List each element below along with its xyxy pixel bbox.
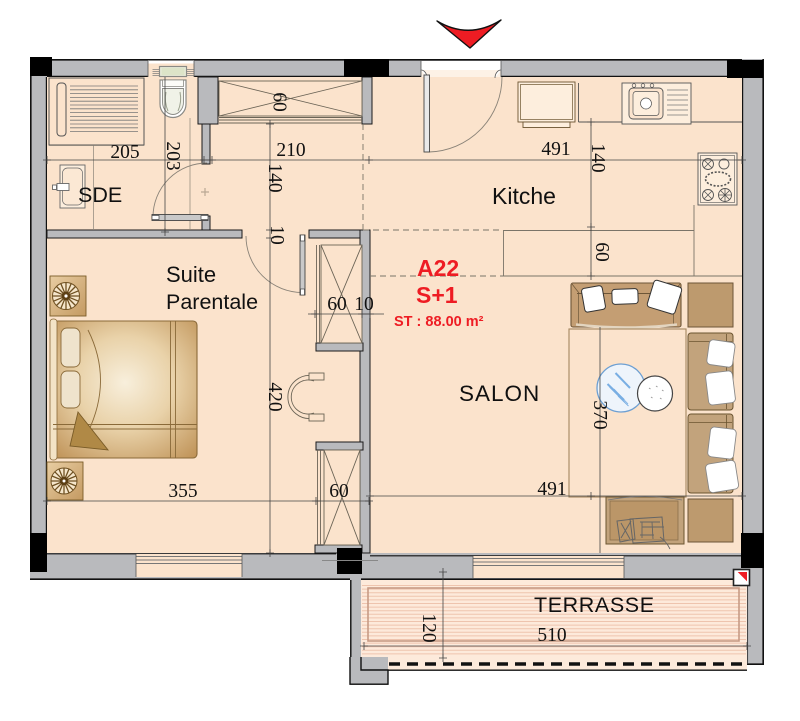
svg-text:Suite: Suite bbox=[166, 262, 216, 287]
svg-text:140: 140 bbox=[264, 163, 285, 192]
svg-text:TERRASSE: TERRASSE bbox=[534, 593, 655, 617]
svg-text:120: 120 bbox=[418, 613, 439, 642]
svg-text:10: 10 bbox=[354, 294, 374, 315]
svg-text:60: 60 bbox=[329, 481, 349, 502]
svg-text:491: 491 bbox=[537, 479, 566, 500]
svg-text:S+1: S+1 bbox=[416, 282, 458, 308]
svg-text:140: 140 bbox=[587, 143, 608, 172]
svg-text:SDE: SDE bbox=[78, 183, 122, 207]
svg-text:60: 60 bbox=[269, 92, 290, 112]
svg-text:210: 210 bbox=[276, 140, 305, 161]
svg-text:370: 370 bbox=[589, 400, 610, 429]
svg-text:203: 203 bbox=[162, 141, 183, 170]
svg-text:355: 355 bbox=[168, 481, 197, 502]
svg-text:10: 10 bbox=[266, 225, 287, 245]
svg-text:60: 60 bbox=[327, 294, 347, 315]
svg-text:420: 420 bbox=[264, 382, 285, 411]
svg-text:491: 491 bbox=[541, 139, 570, 160]
svg-text:60: 60 bbox=[591, 242, 612, 262]
svg-text:SALON: SALON bbox=[459, 381, 540, 406]
svg-text:205: 205 bbox=[110, 142, 139, 163]
svg-text:ST : 88.00 m²: ST : 88.00 m² bbox=[394, 314, 484, 330]
svg-text:Parentale: Parentale bbox=[166, 290, 258, 314]
svg-text:A22: A22 bbox=[417, 255, 459, 281]
svg-text:Kitche: Kitche bbox=[492, 183, 556, 209]
svg-text:510: 510 bbox=[537, 625, 566, 646]
